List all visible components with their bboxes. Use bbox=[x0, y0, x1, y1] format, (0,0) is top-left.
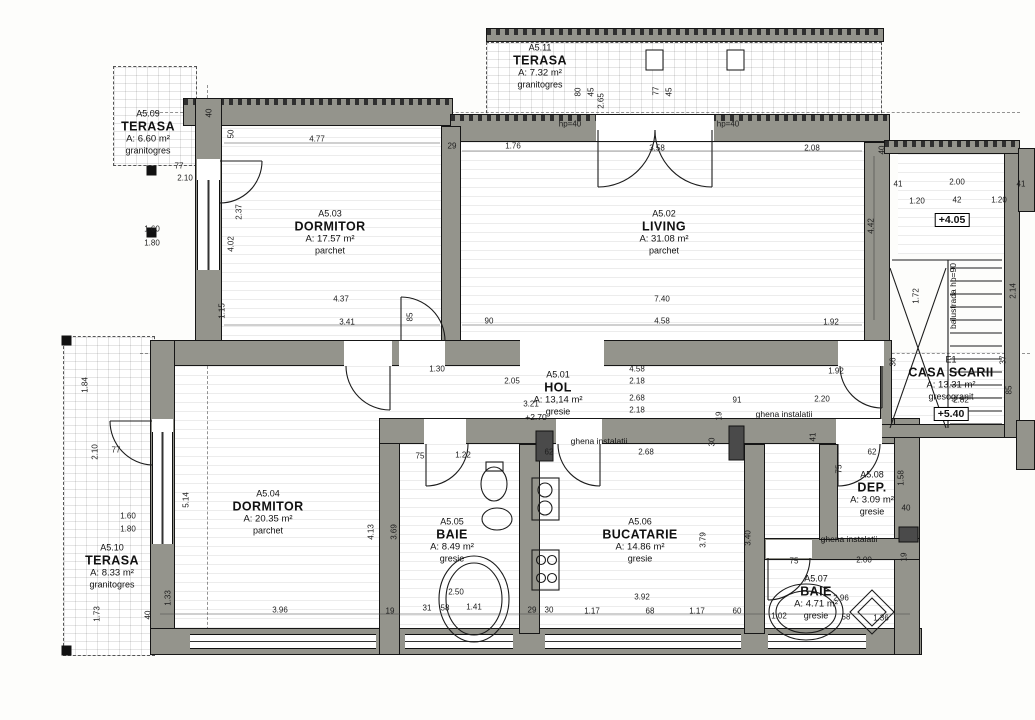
dimension-label: 2.18 bbox=[629, 377, 645, 386]
annotation-label: ghena instalatii bbox=[571, 436, 628, 446]
room-code: A5.05 bbox=[430, 516, 474, 527]
column-marker bbox=[147, 166, 156, 175]
room-code: E1 bbox=[908, 354, 993, 365]
dimension-label: 1.76 bbox=[505, 142, 521, 151]
room-name: TERASA bbox=[85, 553, 139, 568]
dimension-label: 41 bbox=[894, 180, 903, 189]
room-finish: gresie bbox=[430, 553, 474, 564]
room-area: A: 4.71 m² bbox=[794, 599, 838, 610]
room-area: A: 17.57 m² bbox=[294, 234, 365, 245]
room-area: A: 13,14 m² bbox=[533, 395, 582, 406]
dimension-label: 1.22 bbox=[455, 451, 471, 460]
annotation-label: ghena instalatii bbox=[756, 409, 813, 419]
dimension-label: 58 bbox=[441, 604, 450, 613]
dimension-label: 1.92 bbox=[828, 367, 844, 376]
dimension-label: 1.15 bbox=[218, 303, 227, 319]
room-finish: granitogres bbox=[121, 145, 175, 156]
dimension-label: 40 bbox=[144, 611, 153, 620]
elevation-marker: +4.05 bbox=[935, 213, 970, 227]
room-label-A5.08: A5.08DEP.A: 3.09 m²gresie bbox=[850, 469, 894, 516]
room-name: BAIE bbox=[430, 527, 474, 542]
dimension-label: 1.72 bbox=[912, 288, 921, 304]
room-area: A: 20.35 m² bbox=[232, 514, 303, 525]
room-finish: granitogres bbox=[513, 79, 567, 90]
washbasin-icon bbox=[482, 508, 512, 530]
room-name: DORMITOR bbox=[294, 219, 365, 234]
room-label-A5.11: A5.11TERASAA: 7.32 m²granitogres bbox=[513, 42, 567, 89]
stairs bbox=[890, 260, 1002, 428]
room-code: A5.11 bbox=[513, 42, 567, 53]
room-area: A: 8.33 m² bbox=[85, 568, 139, 579]
dimension-label: 75 bbox=[790, 557, 799, 566]
dimension-label: 77 bbox=[112, 446, 121, 455]
dimension-label: 2.08 bbox=[804, 144, 820, 153]
dimension-label: 85 bbox=[406, 313, 415, 322]
door-arc bbox=[840, 366, 882, 408]
door-arc bbox=[110, 421, 152, 465]
dimension-label: 77 bbox=[652, 87, 661, 96]
dimension-label: 5.14 bbox=[182, 492, 191, 508]
dimension-label: 1.17 bbox=[584, 607, 600, 616]
dimension-label: 77 bbox=[175, 162, 184, 171]
dimension-label: 1.20 bbox=[991, 196, 1007, 205]
dimension-label: 80 bbox=[574, 88, 583, 97]
room-code: A5.09 bbox=[121, 108, 175, 119]
room-name: TERASA bbox=[513, 53, 567, 68]
dimension-label: 75 bbox=[835, 465, 844, 474]
dimension-label: 45 bbox=[587, 88, 596, 97]
dimension-label: 90 bbox=[485, 317, 494, 326]
ghena-shaft bbox=[729, 426, 744, 460]
dimension-label: 29 bbox=[528, 606, 537, 615]
dimension-label: 1.36 bbox=[873, 614, 889, 623]
floor-plan-canvas: A5.01HOLA: 13,14 m²gresieA5.02LIVINGA: 3… bbox=[0, 0, 1035, 720]
dimension-label: 4.42 bbox=[867, 218, 876, 234]
dimension-label: 3.40 bbox=[744, 530, 753, 546]
room-name: TERASA bbox=[121, 119, 175, 134]
room-name: DORMITOR bbox=[232, 499, 303, 514]
annotation-label: +2.70 bbox=[525, 412, 547, 422]
dimension-label: 3.92 bbox=[634, 593, 650, 602]
dimension-label: 3.79 bbox=[699, 532, 708, 548]
dimension-label: 2.50 bbox=[448, 588, 464, 597]
room-area: A: 6.60 m² bbox=[121, 134, 175, 145]
room-code: A5.02 bbox=[639, 208, 688, 219]
dimension-label: 19 bbox=[900, 553, 909, 562]
dimension-label: 4.37 bbox=[333, 295, 349, 304]
dimension-label: 2.05 bbox=[504, 377, 520, 386]
room-code: A5.08 bbox=[850, 469, 894, 480]
dimension-label: 3.58 bbox=[649, 144, 665, 153]
dimension-label: 2.00 bbox=[856, 556, 872, 565]
room-finish: parchet bbox=[294, 245, 365, 256]
dimension-label: 85 bbox=[1005, 386, 1014, 395]
room-label-A5.03: A5.03DORMITORA: 17.57 m²parchet bbox=[294, 208, 365, 255]
room-finish: gresie bbox=[602, 553, 677, 564]
room-label-A5.06: A5.06BUCATARIEA: 14.86 m²gresie bbox=[602, 516, 677, 563]
dimension-label: 2.18 bbox=[629, 406, 645, 415]
dimension-label: 19 bbox=[386, 607, 395, 616]
dimension-label: 3.69 bbox=[390, 524, 399, 540]
dimension-label: 42 bbox=[953, 196, 962, 205]
stove-icon bbox=[532, 550, 559, 590]
dimension-label: 30 bbox=[545, 606, 554, 615]
dimension-label: 1.58 bbox=[897, 470, 906, 486]
annotation-label: balustrada hp=90 bbox=[948, 263, 958, 329]
dimension-label: 41 bbox=[1017, 180, 1026, 189]
dimension-label: 1.80 bbox=[144, 239, 160, 248]
dimension-label: 2.20 bbox=[814, 395, 830, 404]
room-label-A5.07: A5.07BAIEA: 4.71 m²gresie bbox=[794, 573, 838, 620]
dimension-label: 50 bbox=[227, 130, 236, 139]
dimension-label: hp=40 bbox=[559, 120, 581, 129]
entry-double-door-arc bbox=[598, 130, 712, 187]
terrace-post bbox=[646, 50, 663, 70]
column-marker bbox=[62, 336, 71, 345]
room-area: A: 14.86 m² bbox=[602, 542, 677, 553]
dimension-label: 36 bbox=[889, 358, 898, 367]
door-arc bbox=[346, 366, 390, 410]
dimension-label: 1.20 bbox=[909, 197, 925, 206]
room-label-A5.04: A5.04DORMITORA: 20.35 m²parchet bbox=[232, 488, 303, 535]
room-finish: granitogres bbox=[85, 579, 139, 590]
dimension-label: 30 bbox=[708, 438, 717, 447]
dimension-label: 68 bbox=[646, 607, 655, 616]
dimension-label: 1.33 bbox=[164, 590, 173, 606]
dimension-label: 4.77 bbox=[309, 135, 325, 144]
dimension-label: 41 bbox=[809, 433, 818, 442]
kitchen-sink-icon bbox=[532, 478, 559, 520]
dimension-label: 3.41 bbox=[339, 318, 355, 327]
room-finish: parchet bbox=[232, 525, 303, 536]
dimension-label: 4.13 bbox=[367, 524, 376, 540]
dimension-label: 37 bbox=[999, 356, 1008, 365]
dimension-label: 4.58 bbox=[629, 365, 645, 374]
room-label-A5.02: A5.02LIVINGA: 31.08 m²parchet bbox=[639, 208, 688, 255]
ghena-shaft bbox=[899, 527, 918, 542]
dimension-label: 40 bbox=[878, 146, 887, 155]
elevation-marker: +5.40 bbox=[934, 407, 969, 421]
room-name: BAIE bbox=[794, 584, 838, 599]
dimension-label: 2.65 bbox=[597, 93, 606, 109]
room-name: BUCATARIE bbox=[602, 527, 677, 542]
dimension-label: hp=40 bbox=[717, 120, 739, 129]
room-label-A5.10: A5.10TERASAA: 8.33 m²granitogres bbox=[85, 542, 139, 589]
room-area: A: 31.08 m² bbox=[639, 234, 688, 245]
room-finish: gresie bbox=[794, 610, 838, 621]
room-area: A: 8.49 m² bbox=[430, 542, 474, 553]
dimension-label: 45 bbox=[665, 88, 674, 97]
room-finish: parchet bbox=[639, 245, 688, 256]
toilet-icon bbox=[481, 462, 507, 501]
dimension-label: 91 bbox=[733, 396, 742, 405]
door-arc bbox=[220, 161, 262, 203]
room-code: A5.06 bbox=[602, 516, 677, 527]
dimension-label: 1.02 bbox=[771, 612, 787, 621]
room-label-E1: E1CASA SCARIIA: 13.31 m²gresogranit bbox=[908, 354, 993, 401]
room-name: HOL bbox=[533, 380, 582, 395]
dimension-label: 58 bbox=[842, 613, 851, 622]
room-code: A5.04 bbox=[232, 488, 303, 499]
dimension-label: 40 bbox=[902, 504, 911, 513]
room-finish: gresogranit bbox=[908, 391, 993, 402]
dimension-label: 60 bbox=[733, 607, 742, 616]
dimension-label: 2.68 bbox=[638, 448, 654, 457]
dimension-label: 1.17 bbox=[689, 607, 705, 616]
dimension-label: 2.68 bbox=[629, 394, 645, 403]
dimension-label: 1.30 bbox=[429, 365, 445, 374]
terrace-post bbox=[727, 50, 744, 70]
room-name: CASA SCARII bbox=[908, 365, 993, 380]
dimension-label: 1.80 bbox=[120, 525, 136, 534]
dimension-label: 19 bbox=[715, 412, 724, 421]
dimension-label: 29 bbox=[448, 142, 457, 151]
dimension-label: 2.10 bbox=[91, 444, 100, 460]
dimension-label: 1.60 bbox=[144, 225, 160, 234]
room-finish: gresie bbox=[850, 506, 894, 517]
shower-icon bbox=[850, 590, 894, 634]
dimension-label: 1.84 bbox=[81, 377, 90, 393]
dimension-label: 31 bbox=[423, 604, 432, 613]
annotation-label: ghena instalatii bbox=[821, 534, 878, 544]
dimension-label: 7.40 bbox=[654, 295, 670, 304]
room-name: LIVING bbox=[639, 219, 688, 234]
dimension-label: 62 bbox=[545, 448, 554, 457]
dimension-label: 2.37 bbox=[235, 204, 244, 220]
dimension-label: 2.14 bbox=[1009, 283, 1018, 299]
dimension-label: 1.41 bbox=[466, 603, 482, 612]
dimension-label: 1.60 bbox=[120, 512, 136, 521]
dimension-label: 1.92 bbox=[823, 318, 839, 327]
dimension-label: 1.73 bbox=[93, 606, 102, 622]
dimension-label: 62 bbox=[868, 448, 877, 457]
room-name: DEP. bbox=[850, 480, 894, 495]
ghena-shaft bbox=[536, 431, 553, 461]
room-area: A: 7.32 m² bbox=[513, 68, 567, 79]
dimension-label: 4.02 bbox=[227, 236, 236, 252]
dimension-label: 4.58 bbox=[654, 317, 670, 326]
room-code: A5.03 bbox=[294, 208, 365, 219]
dimension-label: 75 bbox=[416, 452, 425, 461]
bathtub-icon bbox=[439, 556, 509, 642]
room-area: A: 3.09 m² bbox=[850, 495, 894, 506]
room-code: A5.07 bbox=[794, 573, 838, 584]
dimension-label: 3.96 bbox=[272, 606, 288, 615]
room-label-A5.09: A5.09TERASAA: 6.60 m²granitogres bbox=[121, 108, 175, 155]
room-label-A5.01: A5.01HOLA: 13,14 m²gresie bbox=[533, 369, 582, 416]
room-code: A5.10 bbox=[85, 542, 139, 553]
column-marker bbox=[62, 646, 71, 655]
room-area: A: 13.31 m² bbox=[908, 380, 993, 391]
room-label-A5.05: A5.05BAIEA: 8.49 m²gresie bbox=[430, 516, 474, 563]
room-code: A5.01 bbox=[533, 369, 582, 380]
dimension-label: 2.00 bbox=[949, 178, 965, 187]
dimension-label: 40 bbox=[205, 109, 214, 118]
door-arc bbox=[558, 444, 600, 486]
dimension-label: 2.10 bbox=[177, 174, 193, 183]
